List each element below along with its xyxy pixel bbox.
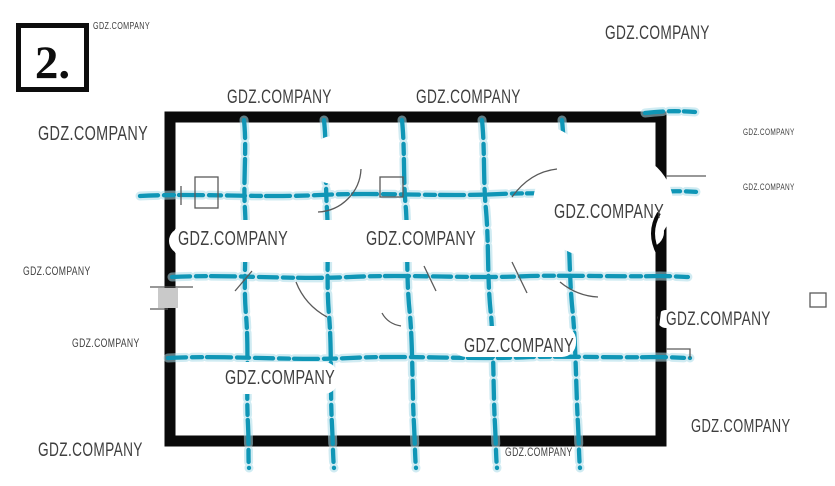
watermark-text: GDZ.COMPANY xyxy=(38,441,143,460)
watermark-text: GDZ.COMPANY xyxy=(743,183,795,192)
watermark-text: GDZ.COMPANY xyxy=(743,128,795,137)
watermark-text: GDZ.COMPANY xyxy=(554,202,664,222)
small-square-marker xyxy=(810,293,826,307)
door-swing-arc-4 xyxy=(560,282,598,297)
door-swing-arc-5 xyxy=(382,313,401,326)
watermark-text: GDZ.COMPANY xyxy=(93,22,150,32)
watermark-text: GDZ.COMPANY xyxy=(225,368,335,388)
watermark-text: GDZ.COMPANY xyxy=(505,446,573,458)
watermark-text: GDZ.COMPANY xyxy=(605,24,710,43)
watermark-text: GDZ.COMPANY xyxy=(691,417,790,435)
watermark-text: GDZ.COMPANY xyxy=(464,336,574,356)
watermark-text: GDZ.COMPANY xyxy=(666,310,771,329)
watermark-text: GDZ.COMPANY xyxy=(366,229,476,249)
watermark-text: GDZ.COMPANY xyxy=(178,229,288,249)
watermark-text: GDZ.COMPANY xyxy=(38,124,148,144)
scanned-sheet: 2. GDZ.COMPANY GDZ.COMPANY GDZ.COMPANY G… xyxy=(0,0,835,486)
watermark-text: GDZ.COMPANY xyxy=(72,337,140,349)
watermark-text: GDZ.COMPANY xyxy=(23,265,91,277)
sheet-number-box: 2. xyxy=(16,23,89,92)
left-wall-door-opening xyxy=(150,287,193,309)
door-swing-arc-3 xyxy=(296,282,327,317)
sheet-number: 2. xyxy=(35,42,70,87)
watermark-text: GDZ.COMPANY xyxy=(227,88,332,107)
watermark-text: GDZ.COMPANY xyxy=(416,88,521,107)
